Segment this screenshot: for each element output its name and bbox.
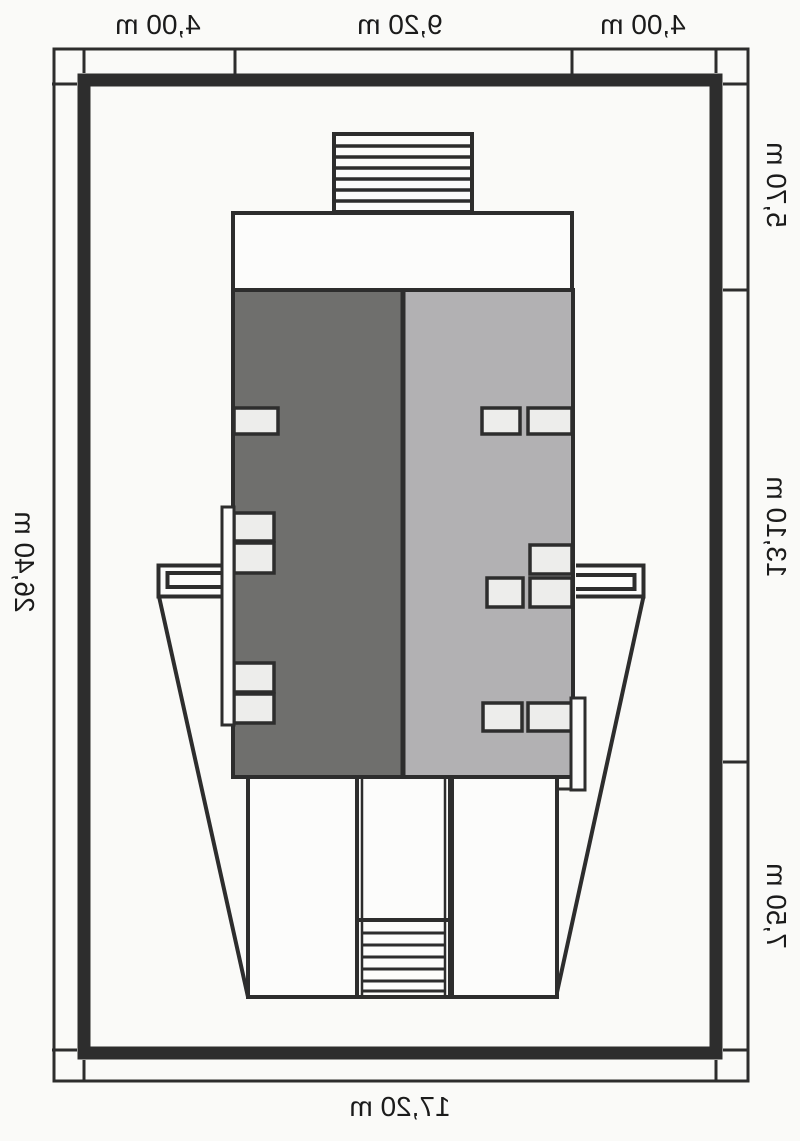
right-canopy bbox=[576, 566, 644, 597]
driveway-right-path bbox=[452, 777, 557, 997]
dim-left-total: 26,40 m bbox=[8, 511, 40, 612]
left-canopy bbox=[159, 566, 225, 597]
right-wall-strip bbox=[571, 698, 585, 790]
dim-right-middle: 13,10 m bbox=[760, 476, 792, 577]
dim-top-left: 4,00 m bbox=[115, 9, 201, 41]
house-upper-section bbox=[233, 213, 572, 290]
dim-top-right: 4,00 m bbox=[600, 9, 686, 41]
dim-right-bottom: 7,50 m bbox=[760, 863, 792, 949]
site-plan: 4,00 m 9,20 m 4,00 m 5,70 m 13,10 m 7,50… bbox=[0, 0, 800, 1141]
site-plan-drawing bbox=[0, 0, 800, 1141]
dim-top-center: 9,20 m bbox=[357, 9, 443, 41]
dim-bottom-total: 17,20 m bbox=[349, 1091, 450, 1123]
driveway-left-path bbox=[248, 777, 357, 997]
left-wall-strip bbox=[222, 507, 234, 725]
dim-right-top: 5,70 m bbox=[760, 142, 792, 228]
entrance-walkway bbox=[357, 777, 450, 997]
